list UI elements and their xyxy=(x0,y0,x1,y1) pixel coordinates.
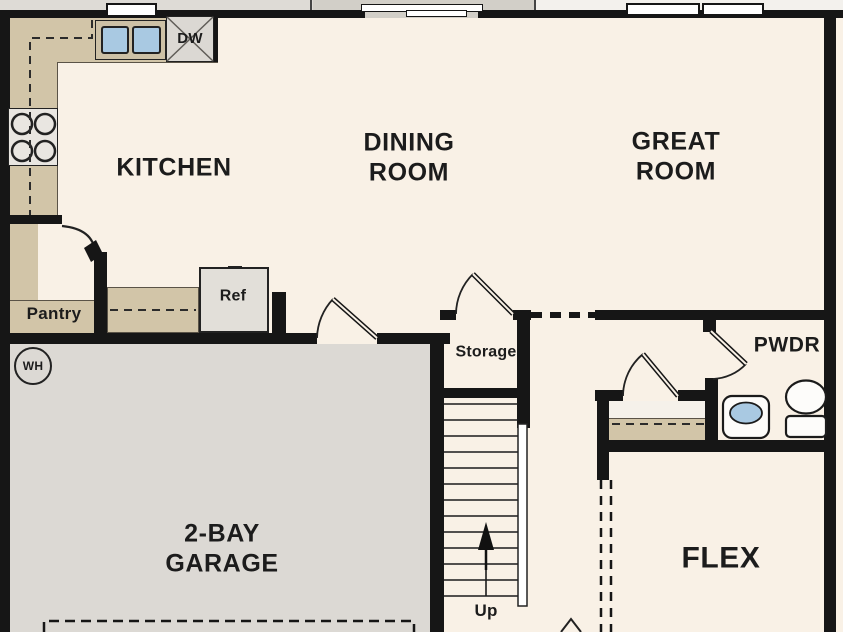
garage-entry-door xyxy=(317,299,377,338)
room-label-garage: 2-BAYGARAGE xyxy=(165,520,278,579)
room-label-kitchen: KITCHEN xyxy=(116,153,231,183)
room-label-dining: DININGROOM xyxy=(363,129,454,188)
cased-opening-flex xyxy=(601,480,611,632)
garage-door-dashed xyxy=(44,621,414,632)
front-door-swing-hint xyxy=(561,619,581,632)
label-dw: DW xyxy=(177,30,202,48)
room-label-great: GREATROOM xyxy=(632,128,721,187)
label-pantry: Pantry xyxy=(27,304,82,324)
stair-up-arrow-icon xyxy=(478,522,494,570)
label-up: Up xyxy=(474,601,497,621)
room-label-flex: FLEX xyxy=(681,540,760,575)
label-wh: WH xyxy=(23,359,43,373)
label-storage: Storage xyxy=(456,344,517,363)
storage-door xyxy=(456,274,513,314)
label-ref: Ref xyxy=(220,288,246,307)
closet-door xyxy=(623,354,678,396)
room-label-pwdr: PWDR xyxy=(754,334,821,359)
powder-room-door xyxy=(711,331,746,379)
range-burners-icon xyxy=(12,114,55,161)
stair-railing xyxy=(518,424,527,606)
upper-cabinet-dashed-line xyxy=(30,20,92,215)
plan-linework xyxy=(0,0,843,632)
pantry-door xyxy=(62,226,103,262)
stair-treads xyxy=(444,404,518,596)
pedestal-sink-icon xyxy=(723,396,769,438)
toilet-icon xyxy=(786,381,826,438)
floor-plan: KITCHEN DININGROOM GREATROOM 2-BAYGARAGE… xyxy=(0,0,843,632)
